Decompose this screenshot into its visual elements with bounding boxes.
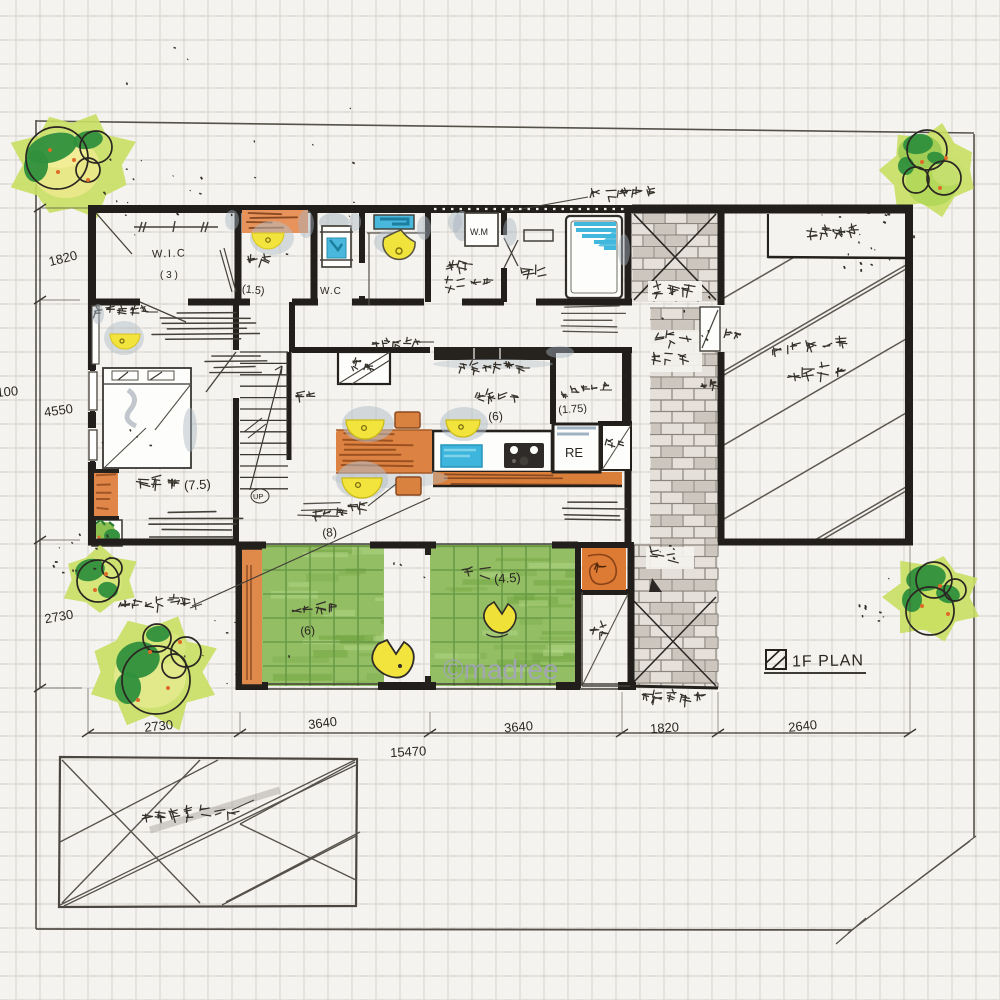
svg-text:15470: 15470	[390, 743, 427, 760]
svg-text:(1.5): (1.5)	[241, 283, 265, 297]
svg-text:1820: 1820	[650, 719, 680, 736]
svg-text:W.M: W.M	[470, 227, 488, 237]
svg-text:(1.75): (1.75)	[558, 403, 588, 417]
svg-text:1100: 1100	[0, 383, 19, 400]
svg-text:W.C: W.C	[320, 286, 342, 297]
svg-text:RE: RE	[565, 445, 583, 460]
svg-text:(7.5): (7.5)	[184, 476, 211, 492]
svg-text:1F PLAN: 1F PLAN	[792, 652, 864, 670]
svg-text:2640: 2640	[787, 717, 817, 735]
svg-text:(8): (8)	[322, 525, 338, 540]
svg-text:(4.5): (4.5)	[493, 570, 521, 587]
svg-text:3640: 3640	[503, 718, 533, 735]
svg-text:(6): (6)	[300, 623, 316, 638]
svg-text:UP: UP	[253, 492, 263, 501]
svg-text:2730: 2730	[143, 717, 173, 735]
svg-text:( 3 ): ( 3 )	[160, 270, 178, 281]
svg-text:©madree: ©madree	[443, 654, 559, 685]
svg-text:W.I.C: W.I.C	[152, 247, 187, 260]
svg-text:(6): (6)	[488, 409, 504, 424]
